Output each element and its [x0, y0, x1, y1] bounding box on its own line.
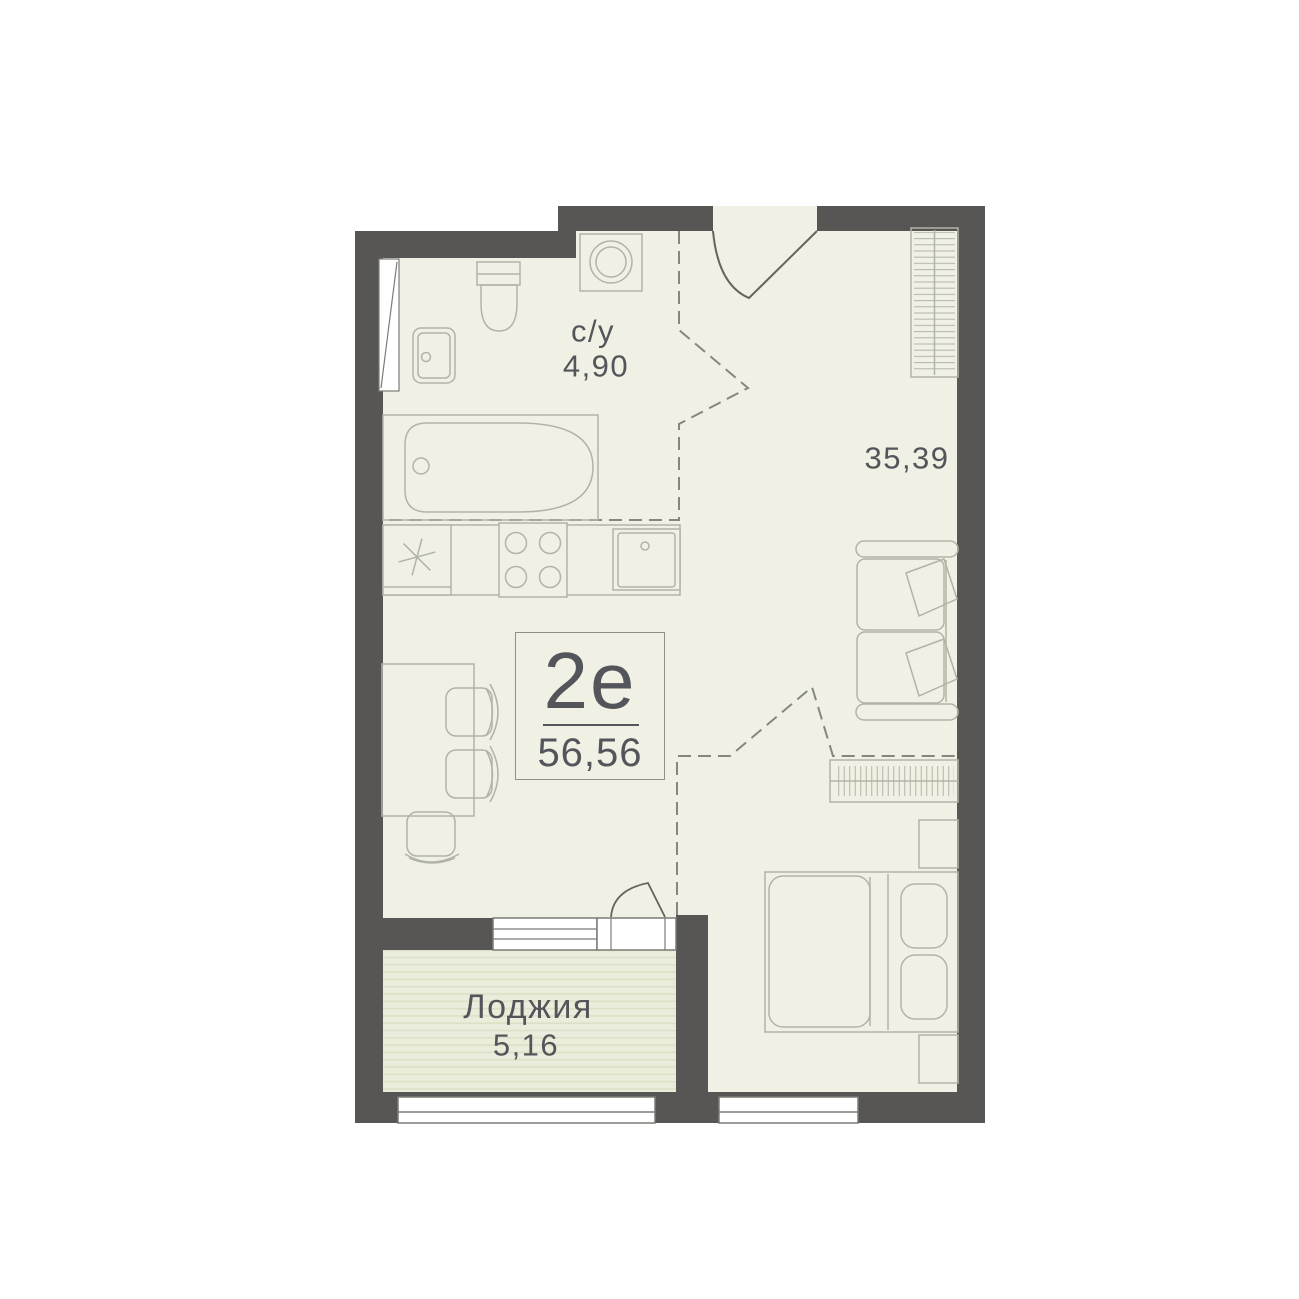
living-room-area: 35,39: [864, 443, 949, 474]
wall-loggia-partition: [383, 918, 493, 950]
floor: [383, 206, 957, 1092]
hall-wardrobe: [911, 228, 958, 377]
clothes-rail: [830, 760, 958, 802]
wall-loggia-pillar: [676, 915, 708, 1092]
stove: [499, 523, 567, 597]
loggia-label: Лоджия: [463, 990, 592, 1024]
wall-top-middle: [558, 206, 713, 231]
bedroom-bottom-window: [719, 1097, 858, 1123]
unit-layout-type: 2е: [516, 641, 664, 721]
kitchen-sink: [613, 529, 680, 590]
entrance-opening-floor: [713, 206, 817, 231]
unit-info-box: 2е 56,56: [515, 632, 665, 780]
bathroom-wall-window: [379, 259, 399, 391]
kitchen: [383, 523, 680, 597]
fridge: [383, 525, 451, 595]
loggia-area: 5,16: [493, 1030, 559, 1061]
wall-top-left: [355, 231, 576, 258]
bathroom-area: 4,90: [563, 351, 629, 382]
floor-plan: с/у 4,90 35,39 Лоджия 5,16 2е 56,56: [0, 0, 1299, 1299]
balcony-window: [493, 918, 597, 950]
unit-total-area: 56,56: [516, 733, 664, 773]
bathroom-label: с/у: [571, 316, 615, 347]
wall-right: [957, 206, 985, 1123]
loggia-bottom-window: [398, 1097, 655, 1123]
unit-divider: [543, 724, 639, 726]
